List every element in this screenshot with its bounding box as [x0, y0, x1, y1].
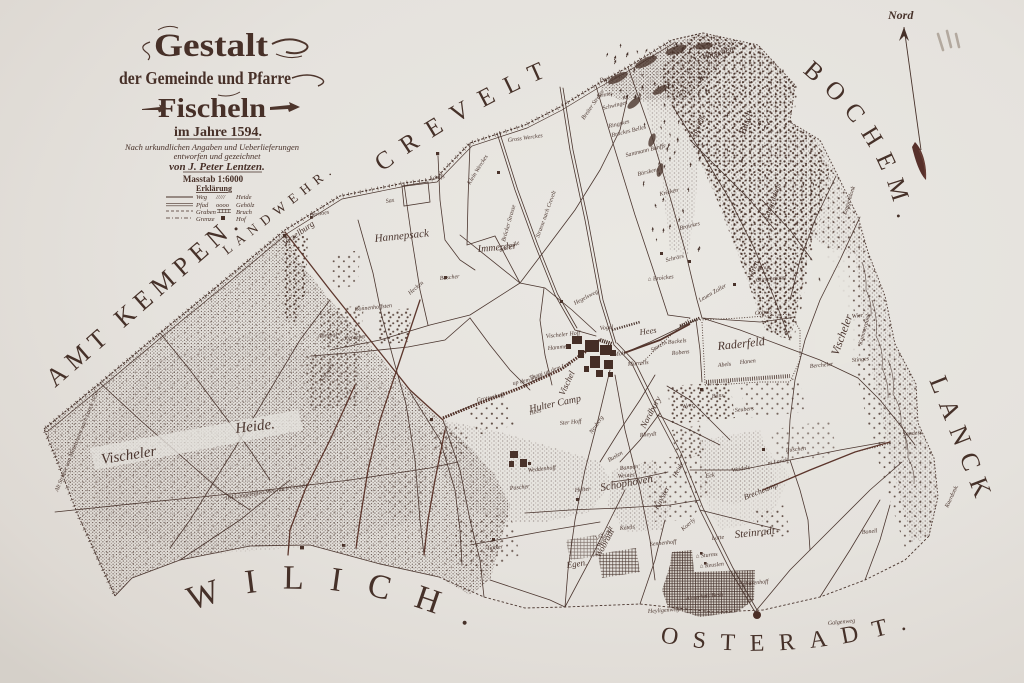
svg-text:der Gemeinde und Pfarre: der Gemeinde und Pfarre — [119, 68, 291, 88]
svg-text:von J. Peter Lentzen.: von J. Peter Lentzen. — [169, 161, 265, 173]
svg-text:Heide: Heide — [235, 194, 252, 201]
svg-text:Gestalt: Gestalt — [154, 28, 268, 64]
svg-text:Pfad: Pfad — [195, 202, 209, 209]
svg-text:Masstab 1:6000: Masstab 1:6000 — [183, 174, 244, 184]
svg-text:Graben: Graben — [196, 209, 216, 216]
svg-text:Wier: Wier — [852, 313, 865, 320]
svg-text:Fischeln: Fischeln — [158, 93, 266, 123]
svg-text:im Jahre 1594.: im Jahre 1594. — [174, 125, 262, 140]
svg-text:оооо: оооо — [216, 202, 230, 209]
svg-text:entworfen und gezeichnet: entworfen und gezeichnet — [174, 151, 262, 161]
svg-text:Grenze: Grenze — [196, 216, 215, 223]
svg-text:Gehölz: Gehölz — [236, 202, 255, 209]
svg-text:Erklärung: Erklärung — [196, 184, 232, 193]
svg-text://///: ///// — [215, 194, 226, 201]
svg-text:Nord: Nord — [887, 8, 914, 22]
svg-text:Weg: Weg — [196, 194, 208, 201]
svg-text:Bruch: Bruch — [236, 209, 252, 216]
svg-text:Hof: Hof — [235, 216, 247, 223]
